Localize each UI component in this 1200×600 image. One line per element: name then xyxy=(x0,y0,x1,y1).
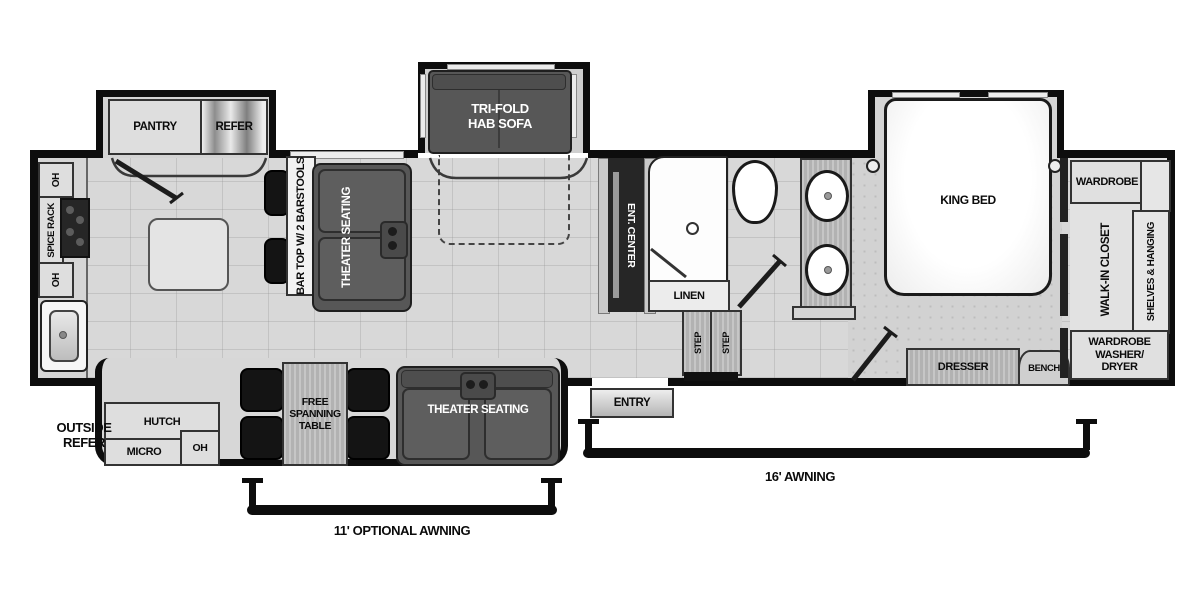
cupholder-icon xyxy=(466,380,475,389)
toilet xyxy=(732,160,778,224)
step: STEP xyxy=(710,310,742,376)
awning16-cap xyxy=(578,419,599,424)
cupholder-icon xyxy=(388,241,397,250)
awning11-cap xyxy=(242,478,263,483)
seat-cushion xyxy=(402,388,470,460)
cooktop xyxy=(60,198,90,258)
theater-seating-label: THEATER SEATING xyxy=(398,404,558,416)
wall-bottom-2 xyxy=(564,378,592,386)
tri-fold-sofa-label: TRI-FOLD HAB SOFA xyxy=(430,88,570,146)
awning11-post xyxy=(548,481,555,507)
burner-icon xyxy=(76,238,84,246)
step-edge xyxy=(684,372,738,381)
cupholder-icon xyxy=(388,227,397,236)
slide-pin-icon xyxy=(866,159,880,173)
closet-partition xyxy=(1060,158,1068,222)
closet-partition xyxy=(1060,328,1068,378)
kitchen-island xyxy=(148,218,229,291)
awning11-post xyxy=(249,481,256,507)
shower xyxy=(648,156,728,282)
theater-seating-label: THEATER SEATING xyxy=(332,165,362,310)
dining-chair xyxy=(240,368,284,412)
rv-floorplan: OH SPICE RACK OH PANTRY REFER BAR TOP W/… xyxy=(0,0,1200,600)
free-spanning-table: FREE SPANNING TABLE xyxy=(282,362,348,466)
closet-counter xyxy=(1140,160,1171,212)
cupholder-console xyxy=(460,372,496,400)
refrigerator: REFER xyxy=(200,99,268,155)
wall-bottom-1 xyxy=(30,378,95,386)
ent-center-label: ENT. CENTER xyxy=(618,158,644,312)
sink-drain-icon xyxy=(824,266,832,274)
awning16-cap xyxy=(1076,419,1097,424)
wall-top-1 xyxy=(30,150,100,158)
burner-icon xyxy=(66,228,74,236)
vanity-sink xyxy=(805,170,849,222)
overhead-cabinet-lower: OH xyxy=(38,262,74,298)
dining-chair xyxy=(346,368,390,412)
walk-in-closet-label: WALK-IN CLOSET xyxy=(1092,214,1120,326)
burner-icon xyxy=(76,216,84,224)
shower-drain-icon xyxy=(686,222,699,235)
kitchen-sink xyxy=(40,300,88,372)
shelves-hanging: SHELVES & HANGING xyxy=(1132,210,1170,334)
ent-center: ENT. CENTER xyxy=(608,158,644,312)
burner-icon xyxy=(66,206,74,214)
pantry: PANTRY xyxy=(108,99,202,155)
vanity-sink xyxy=(805,244,849,296)
awning16-post xyxy=(585,422,592,450)
dining-chair xyxy=(346,416,390,460)
vanity xyxy=(800,158,852,310)
wall-top-3 xyxy=(588,150,873,158)
cupholder-icon xyxy=(479,380,488,389)
window-sofa-left xyxy=(420,74,426,138)
tri-fold-sofa: TRI-FOLD HAB SOFA xyxy=(428,70,572,154)
overhead-cabinet-upper: OH xyxy=(38,162,74,198)
entry-door: ENTRY xyxy=(590,388,674,418)
wall-left xyxy=(30,150,38,386)
awning11-label: 11' OPTIONAL AWNING xyxy=(297,523,507,538)
wardrobe-upper: WARDROBE xyxy=(1070,160,1144,204)
overhead-cabinet-dinette: OH xyxy=(180,430,220,466)
closet-partition xyxy=(1060,234,1068,316)
king-bed: KING BED xyxy=(884,98,1052,296)
dining-chair xyxy=(240,416,284,460)
king-bed-label: KING BED xyxy=(887,193,1049,207)
theater-seating-dinette: THEATER SEATING xyxy=(396,366,560,466)
sink-drain-icon xyxy=(824,192,832,200)
awning16-label: 16' AWNING xyxy=(700,469,900,484)
awning11-cap xyxy=(541,478,562,483)
theater-seating-living: THEATER SEATING xyxy=(312,163,412,312)
cupholder-console xyxy=(380,221,408,259)
vanity-shelf xyxy=(792,306,856,320)
awning11-bar xyxy=(247,505,557,515)
awning16-bar xyxy=(583,448,1090,458)
wardrobe-washer-dryer: WARDROBE WASHER/ DRYER xyxy=(1070,330,1169,380)
outside-refer-label: OUTSIDE REFER xyxy=(36,414,132,458)
linen-closet: LINEN xyxy=(648,280,730,312)
wall-top-4 xyxy=(1060,150,1175,158)
dresser: DRESSER xyxy=(906,348,1020,386)
awning16-post xyxy=(1083,422,1090,450)
sink-drain-icon xyxy=(59,331,67,339)
sofa-bed-extension xyxy=(438,155,570,245)
